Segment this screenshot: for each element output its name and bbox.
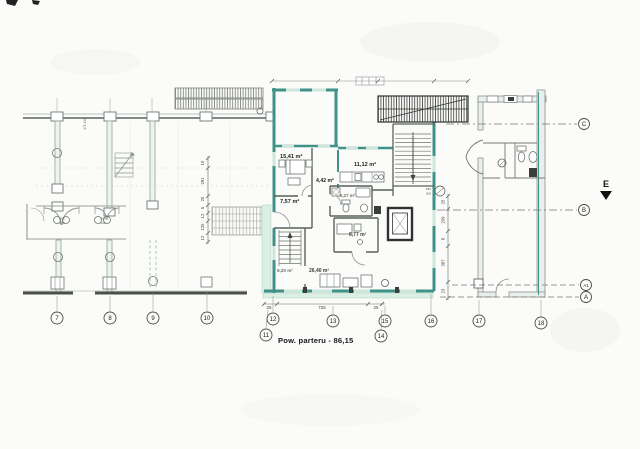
axis-16: 16 — [428, 319, 435, 325]
dim-bottom-2: 25 — [373, 305, 379, 310]
dim-right-1: 209 — [441, 216, 446, 224]
axis-7: 7 — [55, 316, 59, 322]
existing-building — [23, 98, 274, 293]
dim-mid-5: 125 — [200, 223, 205, 231]
dim-mid-0: 10 — [200, 160, 205, 165]
axis-17: 17 — [476, 319, 483, 325]
axis-9: 9 — [151, 316, 155, 322]
door1-width: 206 — [59, 217, 64, 221]
right-building-interior — [483, 143, 545, 292]
room-label-677: 6,77 m² — [349, 232, 367, 238]
axis-8: 8 — [108, 316, 112, 322]
main-building — [264, 77, 470, 293]
dim-right-0: 25 — [441, 199, 446, 204]
room-label-757: 7,57 m² — [280, 198, 299, 205]
bottom-dim-chain: 25 725 25 — [262, 302, 385, 310]
axis-C: C — [582, 122, 587, 128]
door-tag-206b: 206 — [426, 192, 431, 196]
dim-mid-1: 291 — [200, 177, 205, 185]
direction-arrow-icon — [600, 191, 612, 200]
floor-plan-drawing: 25 725 25 10 291 25 5 12 125 12 25 209 8… — [0, 0, 640, 449]
axis-14: 14 — [378, 334, 385, 340]
axis-A1: A1 — [583, 283, 589, 288]
entrance-steps-hatch — [212, 207, 262, 235]
axis-11: 11 — [263, 333, 270, 339]
door2-height: 240 — [100, 221, 105, 225]
right-building — [466, 90, 546, 297]
existing-stair — [115, 152, 135, 177]
room-label-527: 5,27 m² — [340, 193, 356, 198]
dim-mid-3: 5 — [200, 206, 205, 209]
axis-15: 15 — [382, 319, 389, 325]
axis-18: 18 — [538, 321, 545, 327]
dim-right-4: 23 — [441, 288, 446, 293]
interior-stair — [279, 230, 301, 266]
plan-caption: Pow. parteru - 86,15 — [278, 336, 354, 345]
bedroom-furniture — [279, 160, 312, 185]
scanned-floor-plan-page: 25 725 25 10 291 25 5 12 125 12 25 209 8… — [0, 0, 640, 449]
direction-label: E — [603, 179, 609, 189]
axis-markers-right: C B A1 A — [579, 119, 592, 303]
bathroom-fixtures — [332, 188, 370, 212]
room-label-442: 4,42 m² — [316, 178, 334, 184]
axis-B: B — [582, 208, 586, 214]
axis-lines — [437, 124, 579, 297]
door1-height: 240 — [59, 221, 64, 225]
axis-markers-bottom: 7 8 9 10 11 12 13 14 15 16 17 18 — [51, 291, 547, 342]
dim-bottom-0: 25 — [266, 305, 272, 310]
external-stair — [378, 96, 468, 122]
axis-10: 10 — [204, 316, 211, 322]
dim-mid-2: 25 — [200, 196, 205, 201]
right-building-walls — [474, 90, 546, 297]
elevator-shaft — [374, 206, 412, 240]
dim-small-left: 171 440 — [83, 118, 87, 130]
kitchen-counter — [340, 172, 384, 182]
mid-dim-chain: 10 291 25 5 12 125 12 — [200, 156, 210, 244]
door2-width: 206 — [100, 217, 105, 221]
room-label-1112: 11,12 m² — [354, 161, 376, 168]
dim-right-3: 387 — [441, 259, 446, 267]
double-doors — [27, 206, 126, 239]
dim-mid-4: 12 — [200, 213, 205, 218]
right-dim-chain: 25 209 8 387 23 180 206 — [426, 186, 450, 300]
room-label-2640: 26,40 m² — [309, 268, 329, 274]
dim-right-2: 8 — [441, 237, 446, 240]
axis-12: 12 — [270, 317, 277, 323]
window-symbols — [51, 277, 212, 289]
right-building-windows — [487, 96, 532, 103]
stairwell — [395, 132, 431, 184]
room-label-920: 9,20 m² — [277, 268, 293, 273]
dim-bottom-1: 725 — [318, 305, 326, 310]
wall-end-plates — [52, 184, 158, 216]
canopy-hatch — [175, 88, 263, 109]
scan-artifacts — [6, 0, 40, 6]
room-label-1541: 15,41 m² — [280, 153, 303, 160]
axis-A: A — [584, 295, 588, 301]
dim-mid-6: 12 — [200, 235, 205, 240]
door-tag-180: 180 — [426, 187, 431, 191]
paper-smudges — [50, 22, 620, 426]
existing-walls — [55, 121, 155, 293]
right-bathroom-fixtures — [498, 146, 537, 177]
direction-marker: E — [600, 179, 612, 200]
axis-13: 13 — [330, 319, 337, 325]
